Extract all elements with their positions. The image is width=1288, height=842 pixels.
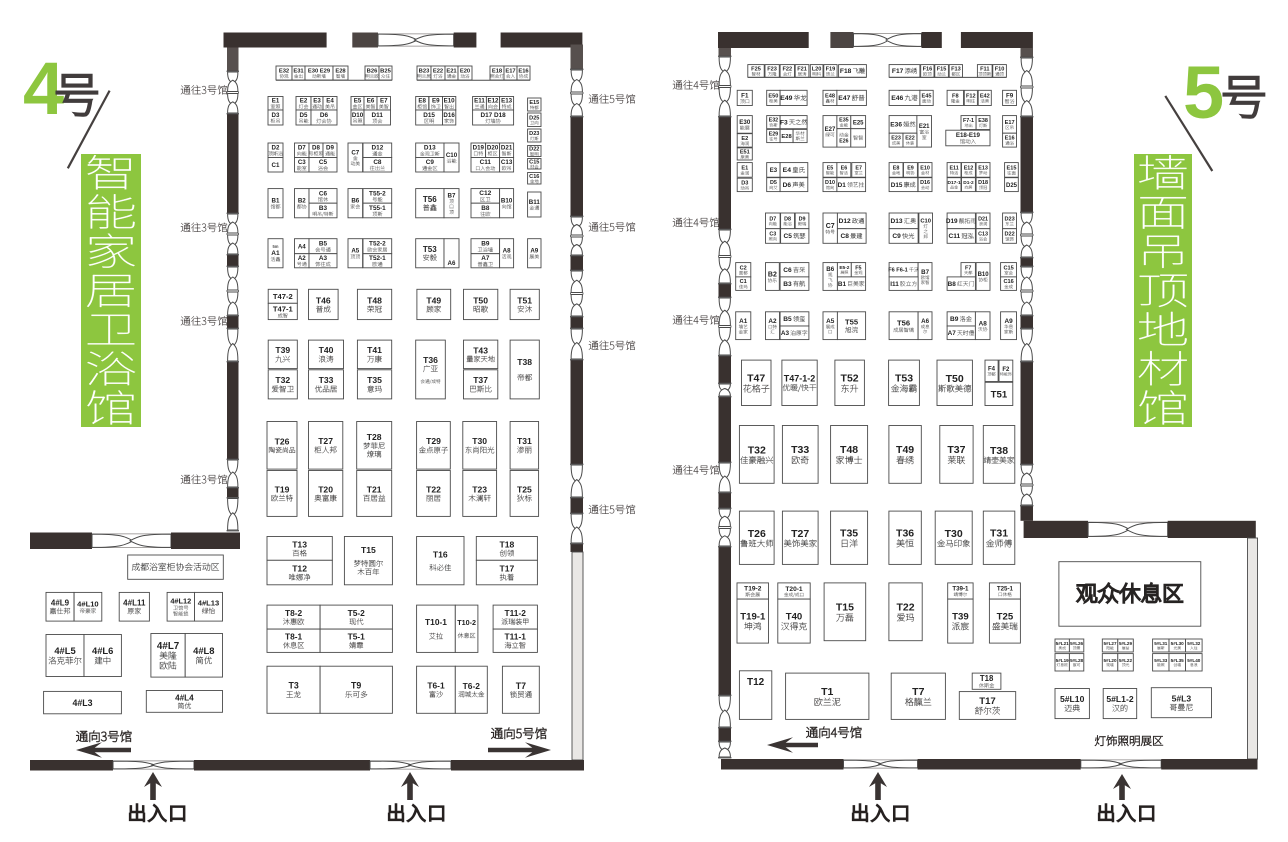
svg-text:T12: T12	[747, 677, 765, 688]
svg-text:B25: B25	[380, 69, 391, 75]
svg-text:E21: E21	[446, 69, 457, 75]
svg-text:E8: E8	[418, 98, 426, 105]
svg-text:F7-1: F7-1	[963, 118, 974, 124]
svg-text:D25: D25	[1006, 183, 1018, 189]
svg-text:T36: T36	[423, 355, 438, 365]
svg-text:T53: T53	[423, 245, 437, 254]
svg-text:T37: T37	[473, 375, 488, 385]
svg-text:4#L12: 4#L12	[170, 597, 191, 606]
svg-text:D21: D21	[501, 145, 513, 152]
svg-text:E21: E21	[919, 124, 930, 130]
svg-text:T5-1: T5-1	[348, 632, 366, 642]
svg-text:E12: E12	[964, 166, 974, 172]
svg-text:E22: E22	[905, 136, 915, 142]
svg-text:A1: A1	[271, 250, 280, 257]
svg-text:T23: T23	[472, 484, 487, 494]
svg-text:E3: E3	[770, 168, 778, 174]
svg-text:T55-2: T55-2	[369, 190, 386, 197]
svg-text:E18: E18	[492, 69, 503, 75]
svg-text:4#L3: 4#L3	[72, 698, 92, 708]
svg-text:T38: T38	[990, 445, 1008, 457]
svg-text:T49: T49	[896, 444, 914, 456]
svg-text:E9: E9	[907, 166, 914, 172]
svg-text:A9: A9	[1005, 318, 1014, 325]
svg-text:T17: T17	[979, 696, 996, 707]
svg-text:E17: E17	[1005, 120, 1015, 126]
svg-text:T27: T27	[791, 528, 809, 540]
svg-text:T7: T7	[516, 681, 526, 691]
svg-text:T48: T48	[840, 444, 858, 456]
svg-text:T13: T13	[292, 539, 307, 549]
svg-text:E3: E3	[313, 98, 321, 105]
svg-text:5#L10: 5#L10	[1060, 694, 1085, 704]
svg-text:T43: T43	[473, 345, 488, 355]
svg-text:C10: C10	[446, 152, 458, 159]
svg-text:T28: T28	[367, 432, 382, 442]
svg-text:T26: T26	[748, 528, 766, 540]
svg-text:C1: C1	[272, 162, 280, 169]
svg-text:E13: E13	[501, 98, 513, 105]
svg-text:T12: T12	[292, 564, 307, 574]
svg-text:T47-1: T47-1	[273, 304, 294, 313]
svg-text:D5: D5	[770, 180, 777, 186]
svg-text:5#L19: 5#L19	[1056, 658, 1069, 663]
svg-text:E4: E4	[783, 167, 792, 174]
svg-text:A6: A6	[921, 318, 929, 325]
svg-text:E30: E30	[739, 119, 751, 126]
svg-text:E23: E23	[891, 136, 901, 142]
svg-text:T16: T16	[433, 549, 448, 559]
svg-text:C5: C5	[783, 233, 792, 240]
svg-text:B11: B11	[529, 199, 541, 206]
svg-text:E8: E8	[893, 166, 900, 172]
svg-text:B26: B26	[367, 69, 378, 75]
svg-text:5#L32: 5#L32	[1187, 641, 1200, 646]
svg-text:C9: C9	[426, 159, 435, 166]
svg-text:B2: B2	[768, 271, 777, 278]
svg-text:D13: D13	[424, 145, 436, 152]
svg-text:E6: E6	[367, 98, 375, 105]
svg-text:T36: T36	[896, 528, 914, 540]
svg-text:C1: C1	[740, 279, 747, 285]
svg-text:E7: E7	[380, 98, 388, 105]
svg-text:T10-1: T10-1	[425, 617, 447, 627]
svg-text:C8: C8	[840, 233, 849, 240]
svg-text:F22: F22	[782, 66, 792, 72]
svg-text:T39: T39	[952, 612, 969, 623]
svg-text:A8: A8	[503, 248, 511, 255]
svg-text:F21: F21	[797, 66, 807, 72]
svg-text:E32: E32	[279, 69, 289, 75]
svg-text:B9: B9	[950, 316, 959, 323]
svg-text:5#L40: 5#L40	[1187, 658, 1200, 663]
svg-text:D5: D5	[300, 112, 308, 119]
svg-text:C11: C11	[948, 233, 960, 240]
svg-text:T25-1: T25-1	[997, 586, 1014, 593]
svg-text:E11: E11	[949, 166, 958, 172]
svg-text:T32: T32	[275, 375, 290, 385]
svg-text:F18: F18	[840, 68, 852, 75]
svg-text:E45: E45	[922, 93, 932, 99]
svg-text:T56: T56	[423, 195, 437, 204]
svg-text:5#L31: 5#L31	[1154, 641, 1167, 646]
svg-text:T7: T7	[912, 686, 924, 698]
svg-text:F10: F10	[995, 66, 1005, 72]
svg-text:4#L10: 4#L10	[77, 599, 99, 608]
svg-text:T11-1: T11-1	[504, 632, 526, 642]
svg-text:E38: E38	[978, 118, 988, 124]
svg-text:A9: A9	[530, 248, 538, 255]
svg-text:B7: B7	[448, 192, 456, 199]
svg-text:T49: T49	[426, 295, 441, 305]
svg-text:T55-1: T55-1	[369, 205, 386, 212]
svg-text:F2: F2	[1002, 367, 1010, 373]
svg-text:C12: C12	[479, 190, 491, 197]
svg-text:T19: T19	[275, 484, 290, 494]
svg-text:E29: E29	[769, 132, 779, 138]
svg-text:T40: T40	[786, 612, 803, 623]
svg-text:B7: B7	[921, 269, 929, 276]
svg-text:E11: E11	[474, 98, 485, 105]
svg-text:C3: C3	[769, 232, 776, 238]
svg-text:E31: E31	[293, 69, 304, 75]
svg-text:F19: F19	[826, 66, 836, 72]
svg-text:D15: D15	[891, 182, 903, 189]
svg-text:E9: E9	[432, 98, 440, 105]
svg-text:C7: C7	[826, 223, 835, 230]
svg-text:C15: C15	[529, 159, 539, 165]
svg-text:E35: E35	[839, 118, 849, 124]
svg-text:5#L26: 5#L26	[1070, 641, 1083, 646]
svg-text:T41: T41	[367, 345, 382, 355]
svg-text:T5-2: T5-2	[348, 608, 366, 618]
svg-text:F25: F25	[751, 66, 761, 72]
svg-text:T38: T38	[517, 357, 532, 367]
svg-text:T29: T29	[426, 436, 441, 446]
svg-text:T8-1: T8-1	[285, 632, 303, 642]
svg-text:T8-2: T8-2	[285, 608, 303, 618]
svg-text:T33: T33	[319, 375, 334, 385]
svg-text:C16: C16	[1003, 279, 1013, 285]
svg-text:T1: T1	[821, 686, 833, 698]
svg-text:5#L22: 5#L22	[1119, 658, 1132, 663]
svg-text:F3: F3	[780, 119, 788, 126]
svg-text:E6: E6	[841, 166, 848, 172]
svg-text:T35: T35	[840, 528, 858, 540]
svg-text:C13: C13	[978, 232, 988, 238]
svg-text:T31: T31	[990, 528, 1008, 540]
svg-text:E27: E27	[825, 127, 836, 133]
svg-text:B3: B3	[783, 281, 792, 288]
svg-text:T35: T35	[367, 375, 382, 385]
svg-text:D21: D21	[978, 216, 988, 222]
svg-text:E20: E20	[460, 69, 470, 75]
svg-text:F23: F23	[767, 66, 777, 72]
svg-text:T3: T3	[288, 681, 298, 691]
svg-text:A7: A7	[948, 330, 957, 337]
svg-text:I11: I11	[890, 281, 899, 288]
svg-text:A4: A4	[298, 243, 306, 250]
svg-text:B2: B2	[298, 198, 306, 205]
svg-text:C10: C10	[920, 219, 931, 225]
svg-text:D25: D25	[529, 115, 539, 121]
svg-text:C6: C6	[783, 267, 792, 274]
svg-text:C13: C13	[501, 159, 513, 166]
svg-text:A6: A6	[448, 260, 456, 267]
svg-text:D7: D7	[298, 145, 306, 152]
svg-text:T22: T22	[426, 484, 441, 494]
svg-text:D22: D22	[1004, 232, 1014, 238]
svg-text:E48: E48	[825, 93, 835, 99]
svg-text:D10: D10	[352, 112, 364, 119]
svg-text:E51: E51	[740, 150, 750, 156]
svg-text:T51: T51	[991, 389, 1008, 400]
svg-text:E49: E49	[780, 95, 792, 102]
svg-text:C9: C9	[892, 233, 901, 240]
svg-text:F8: F8	[952, 93, 959, 99]
svg-text:F7: F7	[965, 265, 971, 271]
svg-text:T32: T32	[748, 445, 766, 457]
svg-text:E50: E50	[768, 93, 778, 99]
svg-text:T39-1: T39-1	[952, 586, 969, 593]
svg-text:T52: T52	[841, 373, 859, 385]
svg-text:B6: B6	[351, 198, 359, 205]
svg-text:E2: E2	[300, 98, 308, 105]
svg-text:E5-2: E5-2	[839, 265, 849, 271]
svg-text:F1: F1	[741, 92, 749, 99]
svg-text:T30: T30	[472, 436, 487, 446]
svg-text:F12: F12	[966, 93, 976, 99]
svg-text:T56: T56	[897, 319, 910, 328]
svg-text:A2: A2	[768, 318, 777, 325]
svg-text:D9: D9	[326, 145, 334, 152]
svg-text:5#L35: 5#L35	[1171, 658, 1184, 663]
svg-text:D15: D15	[423, 112, 435, 119]
svg-text:D17 D18: D17 D18	[480, 112, 506, 119]
svg-text:E22: E22	[433, 69, 443, 75]
svg-text:T20-1: T20-1	[785, 586, 803, 593]
svg-text:F15: F15	[937, 66, 947, 72]
svg-text:T10-2: T10-2	[457, 618, 476, 627]
svg-text:4#L5: 4#L5	[54, 645, 75, 656]
svg-text:D8: D8	[312, 145, 320, 152]
svg-text:B5: B5	[783, 316, 792, 323]
svg-text:4: 4	[23, 47, 64, 130]
svg-text:D12: D12	[372, 145, 384, 152]
svg-text:D6: D6	[320, 112, 329, 119]
svg-text:E26: E26	[839, 139, 848, 145]
svg-text:F11: F11	[980, 66, 989, 72]
svg-text:D16: D16	[443, 112, 455, 119]
svg-text:T18: T18	[980, 674, 994, 683]
svg-text:D12: D12	[839, 218, 851, 225]
svg-text:C3: C3	[298, 159, 306, 166]
svg-text:E2: E2	[741, 136, 748, 142]
svg-text:B10: B10	[501, 198, 513, 205]
svg-text:5#L33: 5#L33	[1154, 658, 1167, 663]
svg-text:E28: E28	[335, 69, 346, 75]
svg-text:D3: D3	[741, 180, 748, 186]
svg-text:D23: D23	[529, 131, 539, 137]
svg-text:5#L29: 5#L29	[1119, 641, 1132, 646]
svg-text:4#L8: 4#L8	[193, 645, 214, 656]
svg-text:5#L21: 5#L21	[1056, 641, 1069, 646]
svg-text:E16: E16	[518, 69, 529, 75]
svg-text:T9: T9	[351, 681, 361, 691]
svg-text:E30 E29: E30 E29	[308, 69, 331, 75]
svg-text:T27: T27	[318, 436, 333, 446]
svg-text:E47: E47	[838, 95, 850, 102]
svg-text:E42: E42	[980, 93, 990, 99]
svg-text:C11: C11	[480, 159, 492, 166]
svg-text:E25: E25	[853, 120, 864, 126]
svg-text:A8: A8	[979, 320, 988, 327]
svg-text:F17: F17	[892, 68, 904, 75]
svg-text:E10: E10	[920, 166, 930, 172]
svg-text:B10: B10	[978, 272, 990, 278]
svg-text:T50: T50	[946, 373, 964, 385]
svg-text:F9: F9	[1006, 92, 1014, 99]
svg-text:T33: T33	[791, 444, 809, 456]
svg-text:E5: E5	[827, 166, 834, 172]
svg-text:T52-1: T52-1	[369, 255, 386, 262]
svg-text:D23: D23	[1004, 216, 1014, 222]
svg-text:5#L27: 5#L27	[1103, 641, 1116, 646]
svg-text:A5: A5	[351, 248, 359, 255]
svg-text:T18: T18	[499, 539, 514, 549]
svg-text:E15: E15	[1007, 165, 1017, 171]
svg-text:D3: D3	[272, 112, 280, 119]
svg-text:T55: T55	[845, 318, 859, 327]
svg-text:E46: E46	[891, 95, 903, 102]
svg-text:T15: T15	[836, 602, 854, 614]
svg-text:A3: A3	[319, 255, 328, 262]
svg-text:C7: C7	[351, 149, 359, 156]
svg-text:B1: B1	[838, 281, 847, 288]
svg-text:B6: B6	[826, 266, 834, 273]
svg-text:5#L30: 5#L30	[1171, 641, 1184, 646]
svg-text:D16: D16	[920, 180, 930, 186]
svg-text:E28: E28	[781, 134, 792, 140]
svg-text:E1: E1	[272, 98, 280, 105]
svg-text:B3: B3	[319, 205, 328, 212]
svg-text:4#L9: 4#L9	[51, 599, 70, 608]
svg-text:C6: C6	[319, 190, 328, 197]
svg-text:T19-2: T19-2	[744, 586, 762, 593]
svg-text:T6-2: T6-2	[463, 681, 481, 691]
svg-text:B9: B9	[481, 241, 490, 248]
svg-text:C2: C2	[740, 265, 747, 271]
svg-text:C16: C16	[529, 174, 539, 180]
svg-text:D19: D19	[473, 145, 485, 152]
svg-text:4#L6: 4#L6	[92, 645, 113, 656]
svg-text:L20: L20	[812, 66, 822, 72]
svg-text:T40: T40	[319, 345, 334, 355]
svg-text:F16: F16	[923, 66, 933, 72]
svg-text:C5: C5	[319, 159, 328, 166]
svg-text:5#L1-2: 5#L1-2	[1106, 694, 1133, 704]
svg-text:4#L11: 4#L11	[123, 599, 146, 608]
svg-text:T51: T51	[517, 295, 532, 305]
svg-text:C8: C8	[373, 159, 382, 166]
svg-text:T47: T47	[747, 373, 765, 385]
svg-text:E15: E15	[529, 100, 539, 106]
svg-text:D13: D13	[890, 218, 902, 225]
svg-text:E10: E10	[444, 98, 456, 105]
svg-text:E16: E16	[1005, 136, 1015, 142]
svg-text:5#L3: 5#L3	[1172, 693, 1192, 703]
svg-text:4#L4: 4#L4	[175, 693, 194, 702]
svg-text:T52-2: T52-2	[369, 241, 386, 248]
svg-text:T20: T20	[318, 484, 333, 494]
svg-text:5: 5	[1183, 51, 1224, 134]
svg-text:T6-1: T6-1	[427, 681, 445, 691]
svg-text:T31: T31	[517, 436, 532, 446]
svg-text:T30: T30	[945, 528, 963, 540]
svg-text:D1: D1	[838, 182, 847, 189]
svg-text:4#L13: 4#L13	[198, 599, 220, 608]
svg-text:E13: E13	[978, 166, 988, 172]
svg-text:T21: T21	[367, 484, 382, 494]
svg-text:E17: E17	[505, 69, 515, 75]
svg-text:D1-2: D1-2	[963, 180, 974, 186]
svg-text:D8: D8	[784, 216, 791, 222]
svg-text:T37: T37	[947, 444, 965, 456]
svg-text:A2: A2	[298, 255, 306, 262]
svg-text:T15: T15	[361, 545, 376, 555]
svg-text:A1: A1	[739, 318, 748, 325]
svg-text:B1: B1	[272, 198, 280, 205]
svg-text:T19-1: T19-1	[740, 612, 766, 623]
svg-text:F4: F4	[988, 367, 996, 373]
svg-text:E5: E5	[354, 98, 362, 105]
svg-text:D17-1: D17-1	[948, 180, 961, 186]
svg-text:D19: D19	[946, 218, 958, 225]
svg-text:T11-2: T11-2	[504, 608, 526, 618]
svg-text:T26: T26	[275, 437, 290, 447]
svg-text:A7: A7	[481, 255, 490, 262]
svg-text:D7: D7	[769, 216, 776, 222]
svg-text:D11: D11	[372, 112, 384, 119]
svg-text:T53: T53	[895, 373, 913, 385]
svg-text:5#L28: 5#L28	[1070, 658, 1083, 663]
svg-text:B8: B8	[948, 281, 957, 288]
svg-text:D2: D2	[272, 145, 280, 152]
svg-text:F5: F5	[855, 265, 861, 271]
svg-text:F6 F6-1: F6 F6-1	[888, 268, 908, 274]
svg-text:T46: T46	[316, 295, 331, 305]
svg-text:E1: E1	[741, 165, 748, 171]
svg-text:T47-2: T47-2	[273, 292, 293, 301]
svg-text:5m: 5m	[272, 244, 278, 249]
svg-text:E4: E4	[326, 98, 334, 105]
svg-text:B23: B23	[419, 69, 430, 75]
svg-text:D9: D9	[799, 216, 806, 222]
svg-text:F13: F13	[951, 66, 961, 72]
svg-text:D10: D10	[825, 180, 835, 186]
svg-text:C15: C15	[1003, 265, 1013, 271]
svg-text:E36: E36	[890, 122, 902, 129]
svg-text:T22: T22	[896, 602, 914, 614]
svg-text:D22: D22	[529, 147, 539, 153]
svg-text:T39: T39	[275, 345, 290, 355]
svg-text:D18: D18	[978, 180, 988, 186]
svg-text:E7: E7	[855, 166, 862, 172]
svg-text:A5: A5	[826, 318, 835, 325]
svg-text:T47-1-2: T47-1-2	[784, 374, 816, 384]
svg-text:D6: D6	[783, 182, 792, 189]
svg-text:T50: T50	[473, 295, 488, 305]
